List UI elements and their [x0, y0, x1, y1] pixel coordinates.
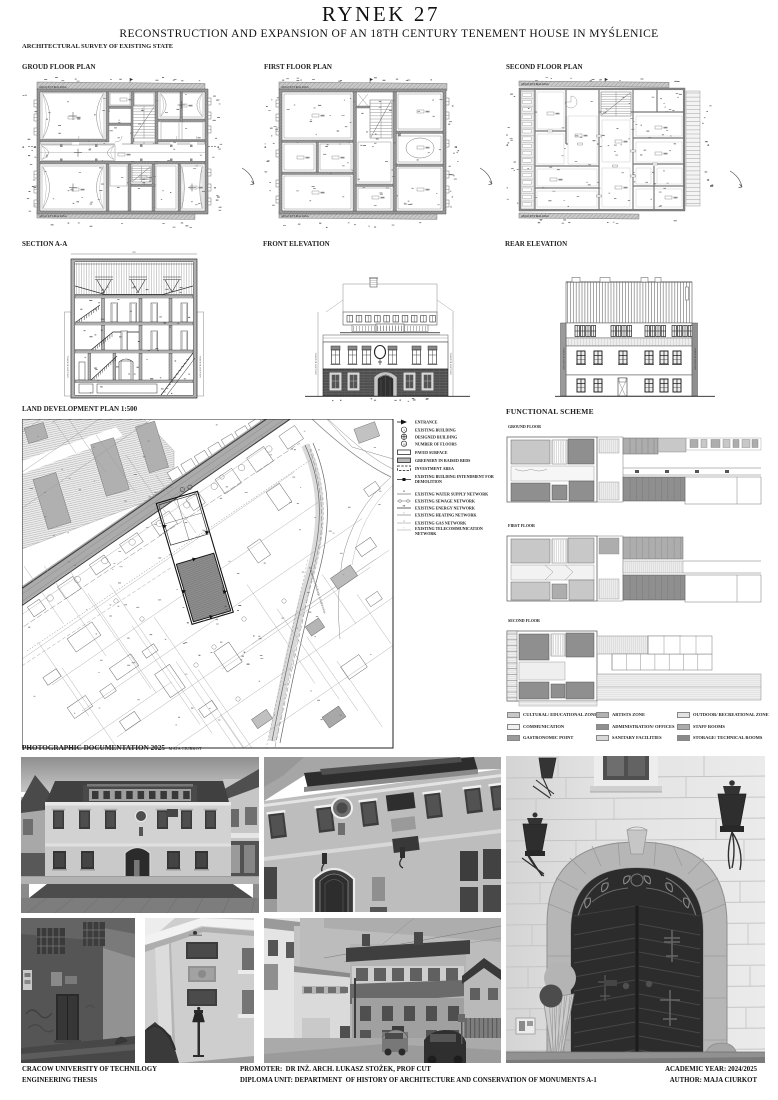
- svg-text:t: t: [404, 527, 405, 530]
- svg-text:EXISTING SEWAGE NETWORK: EXISTING SEWAGE NETWORK: [415, 499, 476, 504]
- svg-text:EXISTING ENERGY NETWORK: EXISTING ENERGY NETWORK: [415, 506, 476, 511]
- svg-text:ul. Kazimierza Wielkiego Zahaj: ul. Kazimierza Wielkiego Zahajkiewicza: [308, 566, 327, 614]
- svg-text:EXISTING WATER SUPPLY NETWORK: EXISTING WATER SUPPLY NETWORK: [415, 492, 489, 497]
- svg-text:EXISTING BUILDING: EXISTING BUILDING: [415, 428, 456, 433]
- svg-text:A: A: [264, 145, 267, 149]
- svg-text:ADJACENT BUILDING: ADJACENT BUILDING: [450, 352, 453, 375]
- svg-text:A: A: [506, 143, 509, 147]
- svg-text:c: c: [403, 512, 405, 515]
- svg-text:ADJACENT BUILDING: ADJACENT BUILDING: [315, 352, 318, 375]
- svg-text:EXISTING GAS NETWORK: EXISTING GAS NETWORK: [415, 521, 467, 526]
- svg-text:ADJACENT BUILDING: ADJACENT BUILDING: [281, 86, 309, 89]
- svg-text:NUMBER OF FLOORS: NUMBER OF FLOORS: [415, 442, 457, 447]
- svg-text:ADJACENT BUILDING: ADJACENT BUILDING: [281, 215, 309, 218]
- svg-text:ADJACENT BUILDING: ADJACENT BUILDING: [67, 355, 70, 378]
- svg-text:XX: XX: [132, 251, 136, 254]
- svg-text:ADJACENT BUILDING: ADJACENT BUILDING: [199, 355, 202, 378]
- svg-text:g: g: [403, 520, 405, 523]
- svg-text:ADJACENT BUILDING: ADJACENT BUILDING: [39, 215, 67, 218]
- svg-text:ADJACENT BUILDING: ADJACENT BUILDING: [521, 83, 549, 86]
- svg-text:PAVED SURFACE: PAVED SURFACE: [415, 450, 448, 455]
- svg-text:A: A: [217, 145, 220, 149]
- svg-text:ADJACENT BUILDING: ADJACENT BUILDING: [521, 215, 549, 218]
- svg-text:INVESTMENT AREA: INVESTMENT AREA: [415, 466, 454, 471]
- svg-text:en: en: [403, 505, 406, 508]
- svg-text:NETWORK: NETWORK: [415, 531, 437, 536]
- svg-text:A: A: [707, 143, 710, 147]
- svg-text:w: w: [403, 489, 406, 493]
- svg-text:A: A: [22, 145, 25, 149]
- svg-text:A: A: [455, 145, 458, 149]
- svg-text:DESIGNED BUILDING: DESIGNED BUILDING: [415, 435, 457, 440]
- svg-text:ENTRANCE: ENTRANCE: [415, 420, 438, 425]
- svg-text:ADJACENT BUILDING: ADJACENT BUILDING: [562, 347, 565, 370]
- svg-text:ADJACENT BUILDING: ADJACENT BUILDING: [39, 86, 67, 89]
- svg-text:GREENERY IN RAISED BEDS: GREENERY IN RAISED BEDS: [415, 458, 471, 463]
- svg-text:1: 1: [403, 428, 405, 432]
- svg-text:DEMOLITION: DEMOLITION: [415, 479, 442, 484]
- svg-text:ADJACENT BUILDING: ADJACENT BUILDING: [694, 347, 697, 370]
- svg-text:10: 10: [403, 442, 407, 446]
- svg-text:EXISTING HEATING NETWORK: EXISTING HEATING NETWORK: [415, 513, 477, 518]
